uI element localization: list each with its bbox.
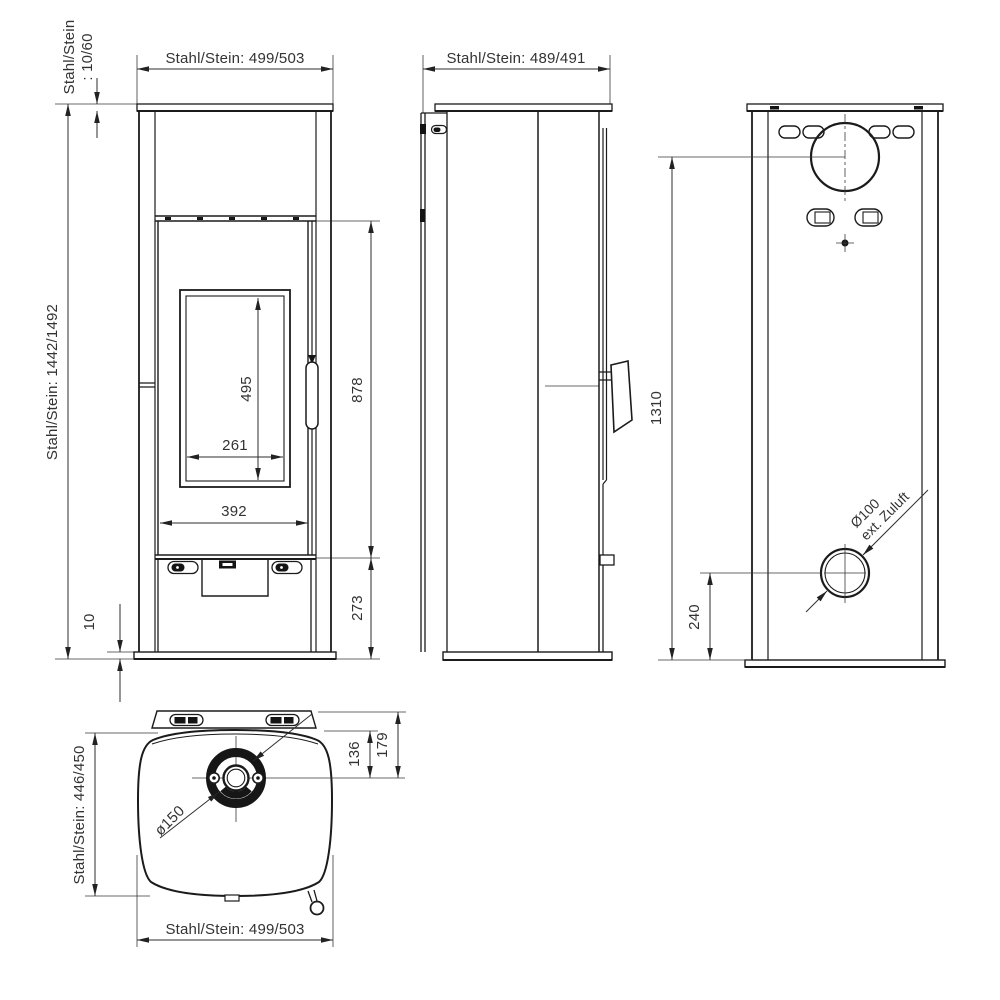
back-adjuster-left-plate <box>815 212 830 223</box>
side-body-lines <box>538 111 599 652</box>
back-base-plate <box>745 660 945 667</box>
dim-total-height-label: Stahl/Stein: 1442/1492 <box>44 304 61 460</box>
dim-door-width-label: 392 <box>221 503 247 520</box>
dim-top-depth-label: Stahl/Stein: 446/450 <box>71 745 88 884</box>
back-top-vent-slots <box>779 126 914 138</box>
side-door-foot <box>600 555 614 565</box>
dim-glass-height-label: 495 <box>238 376 255 402</box>
top-handle-stem <box>308 890 317 902</box>
front-vent-left-dot <box>176 566 179 569</box>
dim-air-inlet-leader-lower <box>806 591 827 612</box>
dim-floor-gap-label: 10 <box>81 613 98 630</box>
back-adjuster-slots <box>807 209 882 226</box>
technical-drawing: Stahl/Stein: 499/503 Stahl/Stein : 10/60… <box>0 0 1000 1000</box>
side-back-tab-oval-dot <box>434 128 441 133</box>
top-front-notch <box>225 895 239 901</box>
dim-glass-width-label: 261 <box>222 437 248 454</box>
front-view <box>55 55 380 659</box>
dim-plate-thickness-label-1: Stahl/Stein <box>61 20 78 95</box>
front-vent-right-dot <box>280 566 283 569</box>
front-top-plate <box>137 104 333 111</box>
front-dimensions: Stahl/Stein: 499/503 Stahl/Stein : 10/60… <box>44 20 371 702</box>
air-inlet-labels: Ø100 ext. Zuluft <box>846 477 912 543</box>
dim-lower-height-label: 273 <box>349 595 366 621</box>
top-collar-bolt-right-dot <box>256 776 260 780</box>
dim-door-height-label: 878 <box>349 377 366 403</box>
front-base-plate <box>134 652 336 659</box>
side-door-handle <box>611 361 632 432</box>
side-door-edge <box>603 128 607 555</box>
side-back-panel <box>421 111 447 652</box>
front-latch-slot <box>223 563 233 566</box>
side-view <box>420 55 632 660</box>
dim-side-depth-label: Stahl/Stein: 489/491 <box>446 50 585 67</box>
dim-air-inlet-height-label: 240 <box>686 604 703 630</box>
front-door-top-ticks <box>165 217 299 220</box>
back-view <box>745 104 945 667</box>
front-door-handle <box>306 362 318 429</box>
back-dimensions: 1310 240 Ø100 ext. Zuluft <box>648 157 928 660</box>
dim-flue-to-back-label: 179 <box>374 732 391 758</box>
back-slot-4 <box>893 126 914 138</box>
top-collar-bolt-left-dot <box>212 776 216 780</box>
dim-top-width-label: Stahl/Stein: 499/503 <box>165 921 304 938</box>
dim-flue-to-body-label: 136 <box>346 741 363 767</box>
dim-front-width-label: Stahl/Stein: 499/503 <box>165 50 304 67</box>
side-top-plate <box>435 104 612 111</box>
side-dimensions: Stahl/Stein: 489/491 <box>423 50 610 69</box>
back-slot-1 <box>779 126 800 138</box>
dim-plate-thickness-label-2: : 10/60 <box>79 33 96 80</box>
front-columns-outer <box>139 111 331 652</box>
side-base-plate <box>443 652 612 660</box>
side-handle-mount <box>599 372 611 380</box>
dim-flue-height-label: 1310 <box>648 391 665 425</box>
back-center-bolt-cross <box>836 234 854 252</box>
top-handle-ring <box>311 902 324 915</box>
back-adjuster-right-plate <box>863 212 878 223</box>
